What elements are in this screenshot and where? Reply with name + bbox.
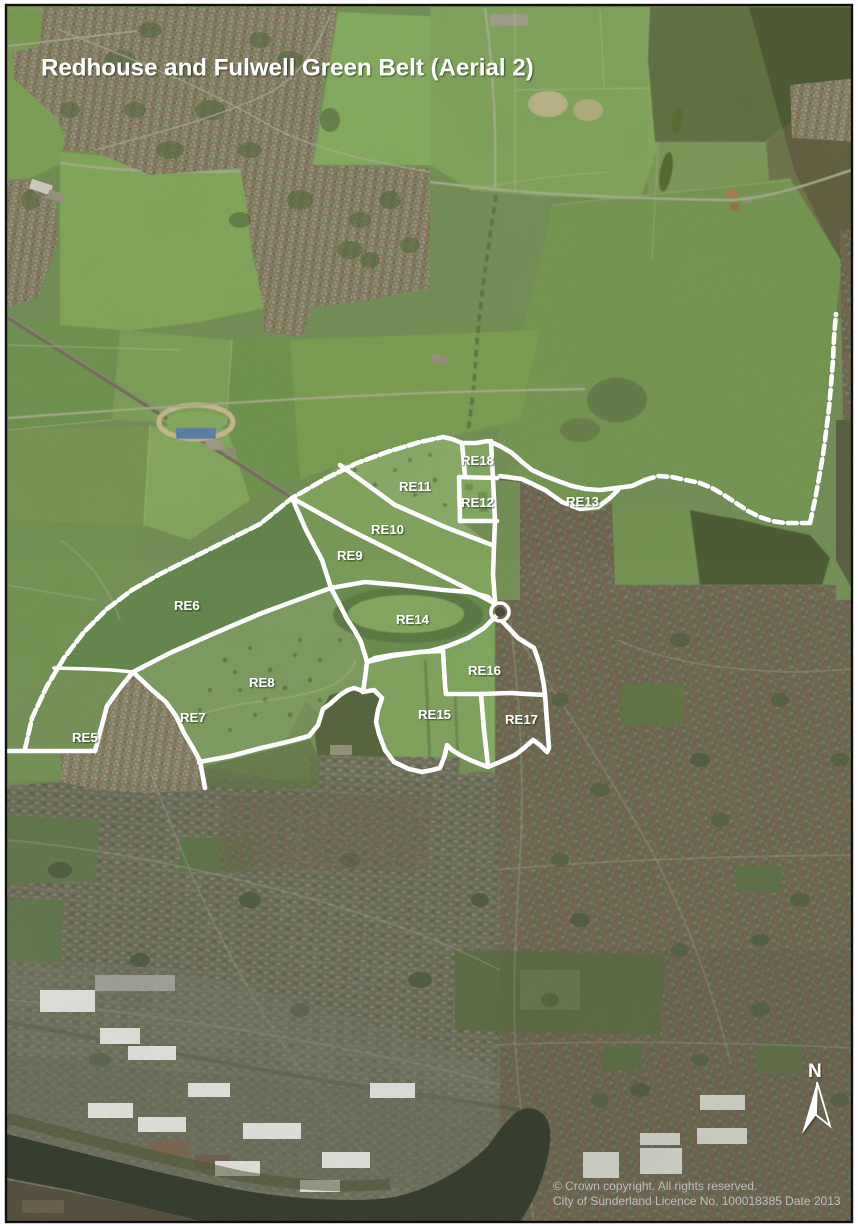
svg-text:Redhouse and Fulwell Green Bel: Redhouse and Fulwell Green Belt (Aerial … [41, 55, 534, 82]
svg-text:RE17: RE17 [505, 712, 538, 727]
svg-text:RE8: RE8 [249, 675, 275, 690]
svg-text:© Crown copyright. All rights: © Crown copyright. All rights reserved. [553, 1179, 757, 1193]
svg-text:RE6: RE6 [174, 598, 200, 613]
svg-text:RE11: RE11 [399, 479, 431, 494]
svg-text:RE14: RE14 [396, 612, 430, 627]
svg-text:City of Sunderland Licence No.: City of Sunderland Licence No. 100018385… [553, 1194, 841, 1208]
svg-text:RE12: RE12 [461, 495, 494, 510]
svg-text:RE9: RE9 [337, 548, 363, 563]
svg-text:RE18: RE18 [461, 453, 494, 468]
svg-text:N: N [808, 1061, 822, 1082]
svg-text:RE15: RE15 [418, 707, 451, 722]
svg-text:RE13: RE13 [566, 494, 599, 509]
svg-text:RE16: RE16 [468, 663, 501, 678]
svg-text:RE10: RE10 [371, 522, 404, 537]
svg-text:RE7: RE7 [180, 710, 206, 725]
svg-text:RE5: RE5 [72, 730, 98, 745]
